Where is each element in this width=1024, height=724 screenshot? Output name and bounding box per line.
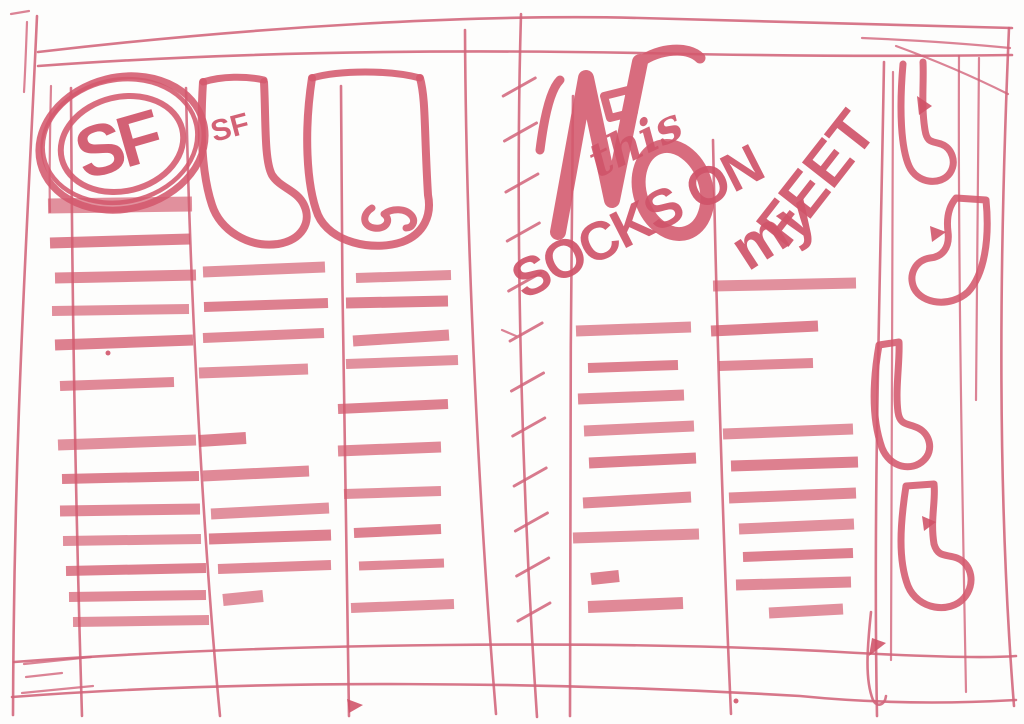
rail-sock-2-outline xyxy=(912,198,987,302)
col1-text-line-10 xyxy=(63,539,201,541)
stray-dot-2 xyxy=(734,699,739,704)
col2-text-line-6 xyxy=(203,471,309,476)
col5-text-line-8 xyxy=(743,553,853,557)
sketch-canvas: SF SF this SOCKS ON my FEET xyxy=(0,0,1024,724)
binding-tick-6 xyxy=(510,323,542,341)
v-left-gate-1 xyxy=(24,22,27,92)
binding-tick-10 xyxy=(515,513,547,531)
col1-text-line-4 xyxy=(52,309,189,311)
col1-text-line-1 xyxy=(48,204,192,206)
col3-text-line-5 xyxy=(338,404,448,409)
col1-text-line-3 xyxy=(55,275,196,278)
col3-text-line-8 xyxy=(354,529,441,533)
col3-text-line-7 xyxy=(344,491,441,494)
col3-text-line-9 xyxy=(359,563,444,566)
col3-text-line-2 xyxy=(346,301,448,303)
header-rule-bottom xyxy=(38,51,1012,66)
col4-text-line-5 xyxy=(589,458,696,463)
col4-text-line-3 xyxy=(578,395,684,399)
col5-text-line-2 xyxy=(711,326,818,331)
v-rail-3 xyxy=(976,58,979,400)
col2-text-line-10 xyxy=(223,596,263,600)
col2-text-line-7 xyxy=(211,508,329,514)
ruled-grid xyxy=(11,11,1016,716)
v-left-gate-2 xyxy=(50,86,51,212)
col5-text-line-4 xyxy=(723,429,853,434)
sock-cuff-line xyxy=(312,72,420,78)
col1-text-line-9 xyxy=(60,509,200,511)
col5-text-line-3 xyxy=(719,363,813,366)
stray-dot-1 xyxy=(106,351,111,356)
col4-text-line-8 xyxy=(591,576,619,579)
col1-text-line-12 xyxy=(69,595,206,597)
binding-tick-2 xyxy=(504,123,536,141)
binding-tick-11 xyxy=(517,558,549,576)
col2-text-line-1 xyxy=(203,267,325,272)
col5-text-line-1 xyxy=(713,283,856,286)
headline: this SOCKS ON my FEET xyxy=(502,50,888,311)
binding-tick-12 xyxy=(518,603,550,621)
col1-text-line-7 xyxy=(58,440,196,445)
col1-text-line-13 xyxy=(73,620,209,622)
col4-text-line-4 xyxy=(584,426,694,431)
col1-text-line-6 xyxy=(60,382,174,386)
col2-text-line-2 xyxy=(204,303,328,307)
header-diagonal xyxy=(896,46,1008,94)
col1-text-line-11 xyxy=(66,568,206,571)
sock-illustration-col3 xyxy=(307,72,429,246)
col1-text-line-2 xyxy=(50,239,190,243)
col2-text-line-8 xyxy=(209,535,331,539)
flourish-swash xyxy=(640,50,700,62)
col3-text-line-3 xyxy=(353,335,449,341)
v-right-border xyxy=(1001,28,1014,706)
col1-text-line-5 xyxy=(55,340,193,345)
binding-tick-8 xyxy=(513,418,545,436)
binding-tick-3 xyxy=(506,174,538,192)
sock-illustration-col2: SF xyxy=(202,77,307,244)
v-col2-right xyxy=(341,86,349,716)
col2-text-line-5 xyxy=(199,438,246,441)
col4-text-line-2 xyxy=(588,365,678,368)
col3-text-line-6 xyxy=(338,447,441,451)
header-rule-extra xyxy=(862,38,1010,48)
col2-text-line-9 xyxy=(218,565,331,569)
footer-rule-bottom xyxy=(12,684,1016,702)
footer-triangle-mark xyxy=(347,699,363,713)
sketch-page: SF SF this SOCKS ON my FEET xyxy=(0,0,1024,724)
binding-tick-9 xyxy=(514,468,546,486)
col5-text-line-7 xyxy=(739,524,854,529)
col5-text-line-5 xyxy=(731,462,858,466)
col4-text-line-7 xyxy=(573,534,699,538)
binding-tick-7 xyxy=(511,373,543,391)
rail-sock-4-outline xyxy=(901,484,971,608)
col5-text-line-9 xyxy=(736,582,851,585)
col4-text-line-1 xyxy=(576,327,691,331)
sock-cuff-line xyxy=(203,77,264,82)
v-col3-right xyxy=(465,30,496,714)
rail-sock-2-heel-mark xyxy=(930,226,946,242)
col5-text-line-6 xyxy=(729,493,856,498)
col1-text-line-8 xyxy=(62,476,199,479)
col4-text-line-6 xyxy=(583,497,691,503)
rail-sock-3-outline xyxy=(874,342,930,467)
col3-text-line-10 xyxy=(351,604,454,608)
col5-text-line-10 xyxy=(769,609,843,613)
sock-outline xyxy=(202,82,307,245)
text-line-bars xyxy=(48,204,858,622)
header-rule-top xyxy=(38,17,1012,52)
corner-dash xyxy=(11,11,29,14)
col2-text-line-4 xyxy=(199,369,308,373)
footer-rule-top xyxy=(14,645,1016,662)
col4-text-line-9 xyxy=(588,603,683,607)
footer-scribble-3 xyxy=(26,673,62,677)
col2-text-line-3 xyxy=(203,333,324,338)
v-left-border xyxy=(13,16,37,715)
sock-squiggle xyxy=(365,208,414,228)
rail-sock-1-outline xyxy=(901,62,953,181)
col3-text-line-4 xyxy=(346,360,458,364)
binding-tick-4 xyxy=(507,223,539,241)
sock-tag-text: SF xyxy=(207,107,253,149)
binding-dash xyxy=(502,330,516,336)
flourish-tail xyxy=(540,80,560,150)
v-rail-1 xyxy=(891,72,893,660)
col3-text-line-1 xyxy=(356,275,451,278)
